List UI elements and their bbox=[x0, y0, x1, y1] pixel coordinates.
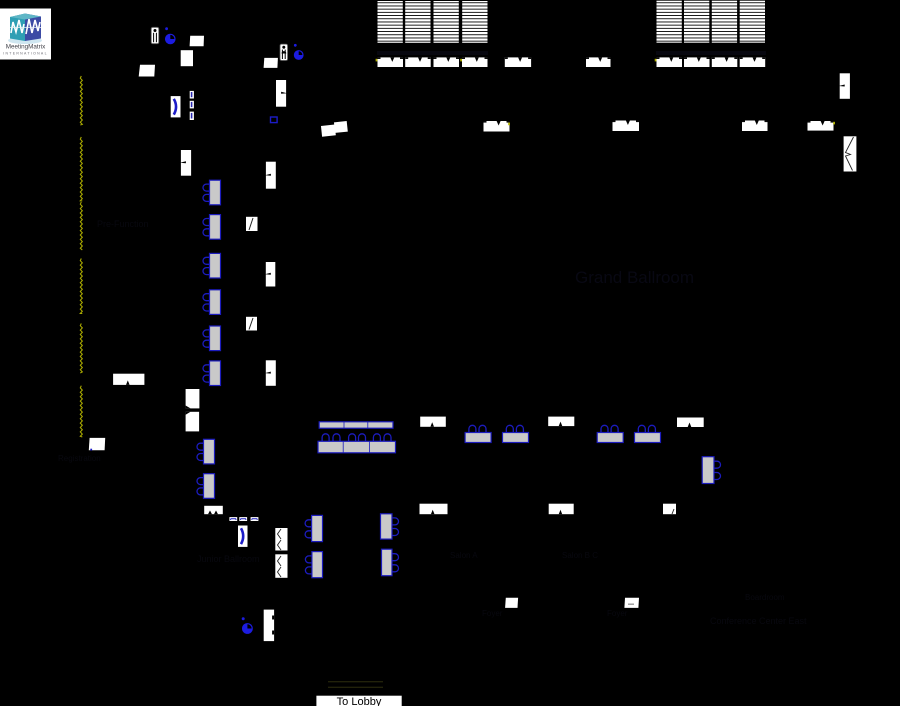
svg-text:To Lobby: To Lobby bbox=[337, 696, 382, 706]
svg-text:INTERNATIONAL: INTERNATIONAL bbox=[3, 52, 48, 56]
svg-text:Conference Center East: Conference Center East bbox=[710, 616, 807, 626]
svg-text:Foyer: Foyer bbox=[607, 609, 628, 618]
svg-text:MeetingMatrix: MeetingMatrix bbox=[6, 44, 46, 51]
svg-text:Pre-Function: Pre-Function bbox=[97, 219, 149, 229]
svg-text:Salon A: Salon A bbox=[450, 551, 478, 560]
svg-text:Salon B C: Salon B C bbox=[562, 551, 598, 560]
svg-text:Grand Ballroom: Grand Ballroom bbox=[575, 268, 694, 287]
svg-text:Registration: Registration bbox=[58, 454, 101, 463]
svg-text:Junior Ballroom: Junior Ballroom bbox=[197, 554, 260, 564]
svg-text:Foyer: Foyer bbox=[482, 609, 503, 618]
svg-text:Boardroom: Boardroom bbox=[745, 593, 785, 602]
